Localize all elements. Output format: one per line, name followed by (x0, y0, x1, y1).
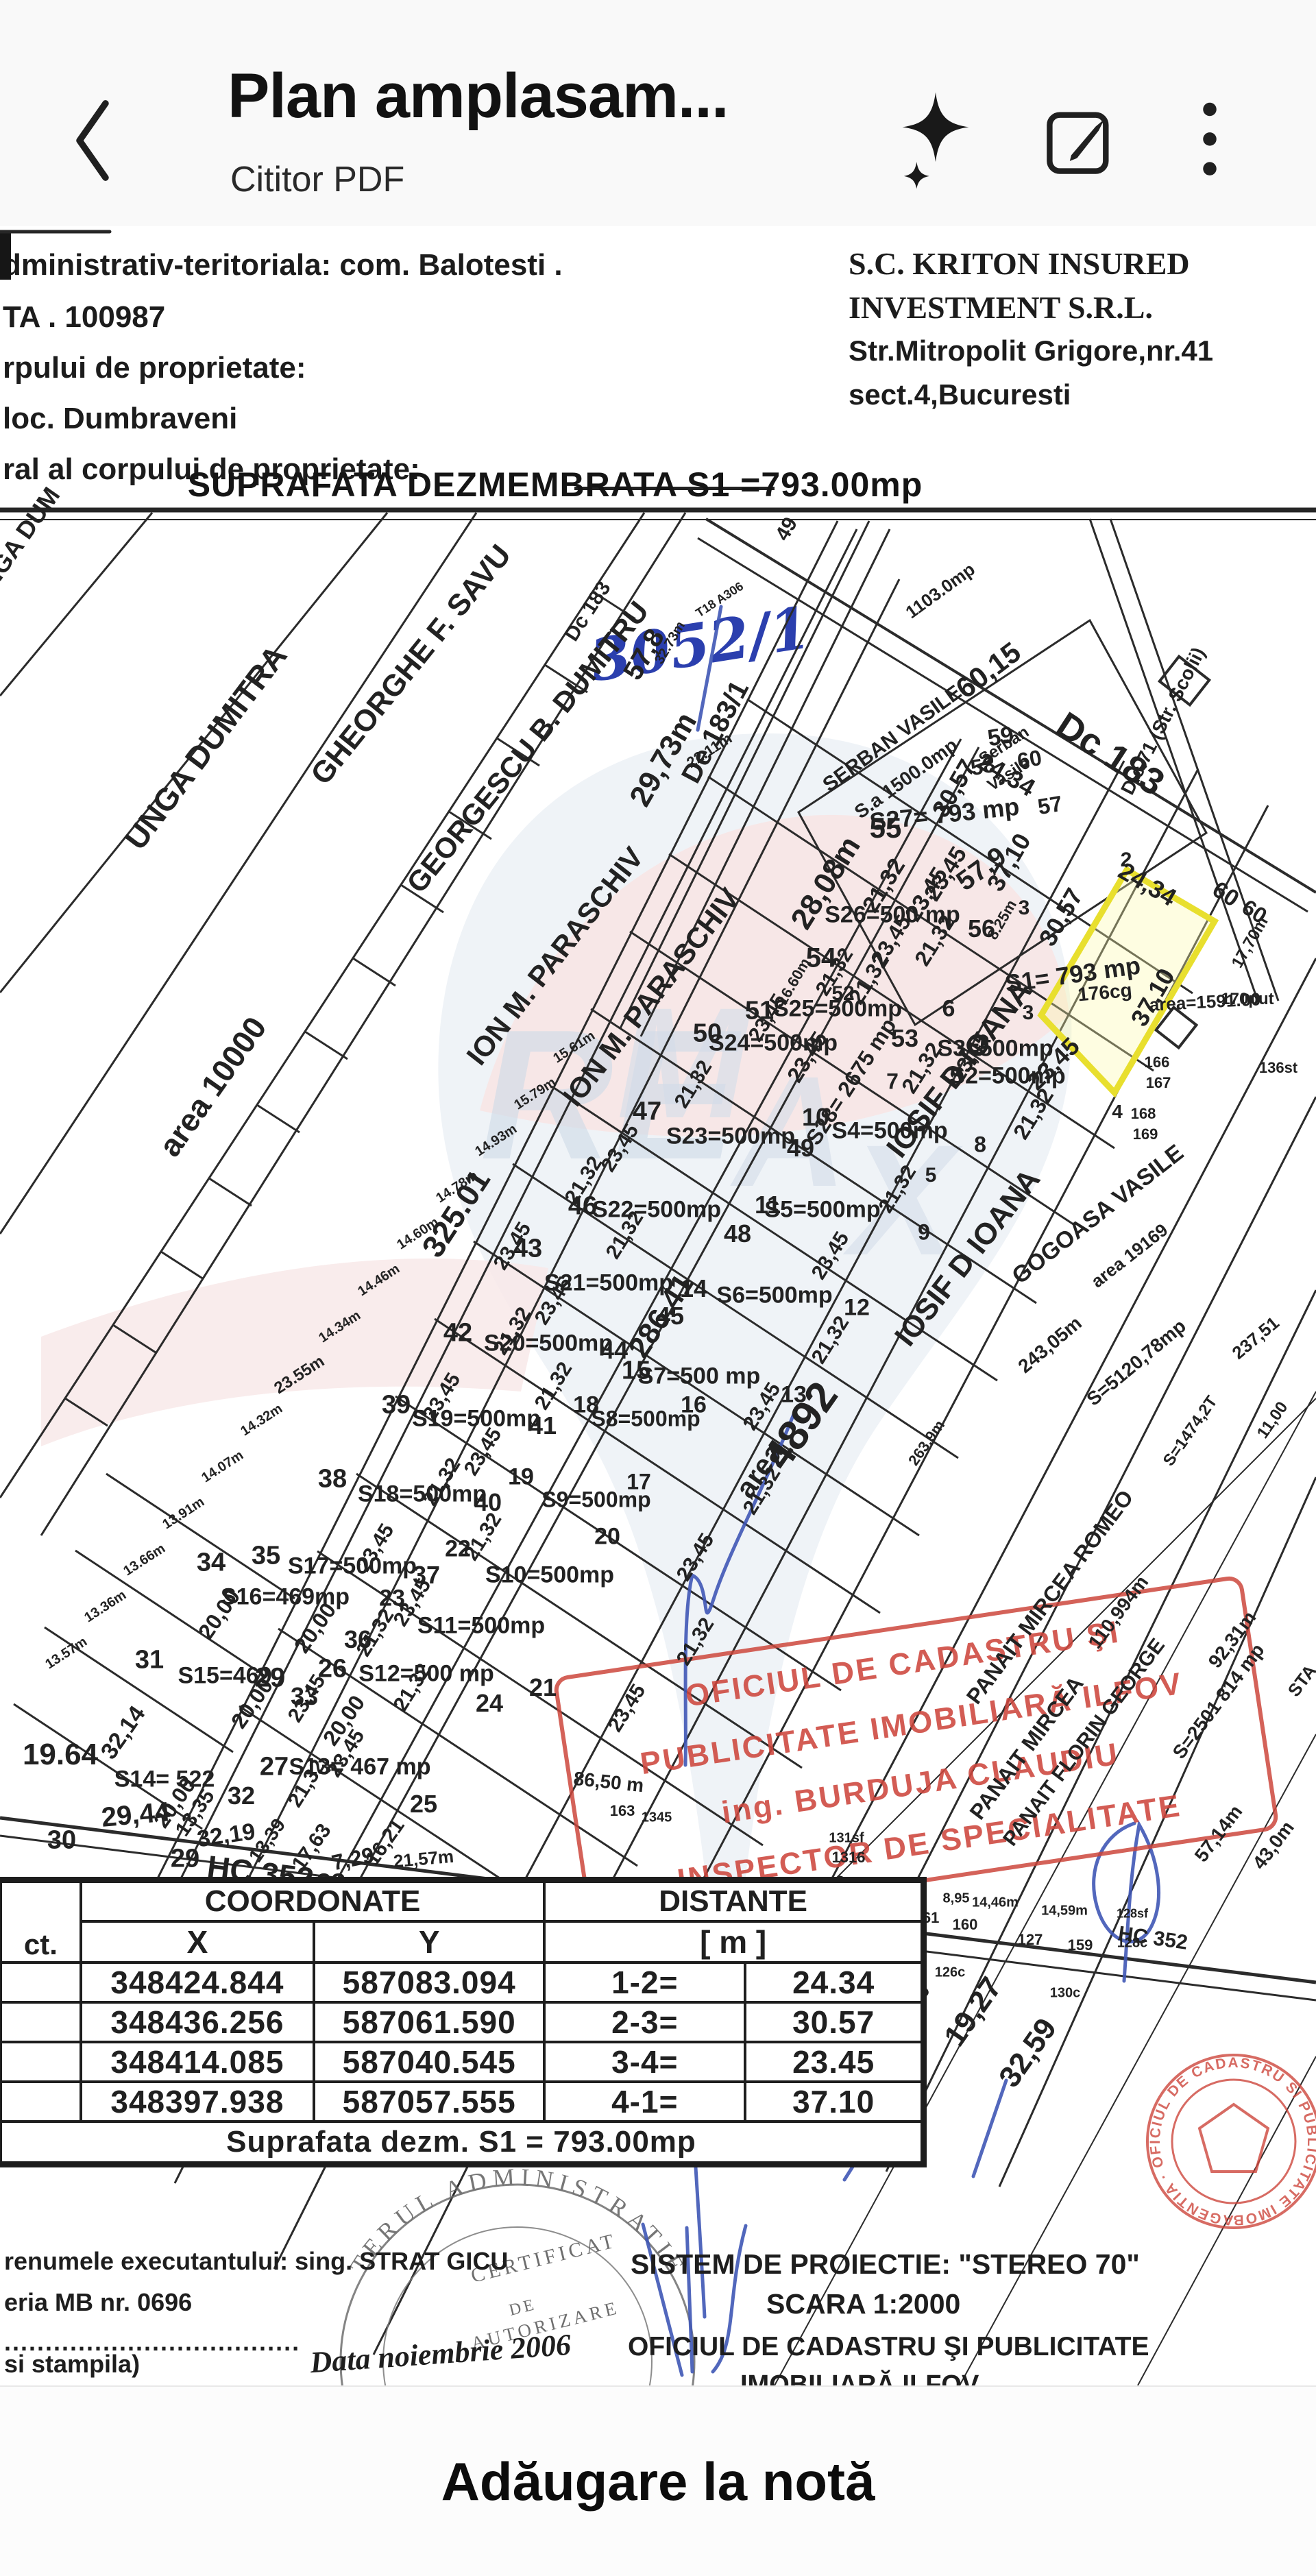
map-label: 163 (610, 1802, 635, 1820)
map-label: 60 (1208, 876, 1244, 912)
map-label: 263.9m (905, 1417, 949, 1469)
map-label: 14.32m (238, 1401, 285, 1439)
map-label: S=1474,2T (1160, 1393, 1222, 1470)
map-label: 15.79m (511, 1075, 559, 1113)
col-header-pct: ct. (1, 1882, 81, 1963)
map-label: 32,14 (96, 1701, 151, 1764)
map-label: S=5120,78mp (1082, 1315, 1190, 1410)
map-label: 20,00 (193, 1585, 245, 1644)
map-label: 5 (925, 1164, 937, 1187)
map-label: NGA DUM (0, 482, 66, 594)
map-label: S23=500mp (666, 1123, 795, 1150)
map-label: 13.57m (42, 1634, 90, 1673)
map-label: 8 (974, 1132, 986, 1158)
map-label: 136st (1259, 1059, 1297, 1077)
add-to-note-bar[interactable]: Adăugare la notă (0, 2385, 1316, 2576)
map-label: 13.36m (82, 1588, 129, 1626)
map-label: 23.55m (271, 1352, 328, 1398)
col-header-m: [ m ] (544, 1921, 922, 1963)
map-label: S7=500 mp (638, 1363, 761, 1390)
map-label: 11,00 (1254, 1398, 1293, 1442)
map-label: 14.07m (199, 1448, 246, 1486)
map-label: area 19169 (1087, 1219, 1172, 1292)
back-chevron-icon (69, 96, 117, 185)
map-label: 32 (228, 1782, 255, 1810)
map-label: 17,70m (1228, 914, 1273, 972)
map-label: T18 A306 (693, 579, 746, 620)
map-label: 15 (622, 1357, 650, 1386)
map-label: S24=500mp (709, 1030, 838, 1057)
map-label: 25 (410, 1790, 437, 1819)
map-label: 1345 (642, 1810, 672, 1826)
map-label: 14,59m (1041, 1904, 1088, 1919)
map-label: 21,32 (807, 1312, 855, 1368)
map-label: 20 (594, 1524, 620, 1551)
projection-line: SISTEM DE PROIECTIE: "STEREO 70" (631, 2248, 1140, 2281)
top-app-bar: Plan amplasam... Cititor PDF (0, 0, 1316, 226)
map-label: 16 (681, 1392, 707, 1419)
table-row: 348397.938587057.555 4-1=37.10 (1, 2082, 922, 2122)
map-label: 21,57m (393, 1846, 455, 1873)
table-row: 348436.256587061.590 2-3=30.57 (1, 2002, 922, 2042)
office-line: OFICIUL DE CADASTRU ŞI PUBLICITATE (628, 2332, 1149, 2362)
map-label: 14,46m (972, 1895, 1019, 1911)
map-label: 13.91m (160, 1494, 207, 1533)
col-header-distante: DISTANTE (544, 1882, 922, 1921)
map-label: 41 (529, 1411, 557, 1440)
map-label: 131sf (829, 1831, 864, 1847)
map-label: 21,32 (875, 1161, 922, 1217)
stamp-note-line: si stampila) (4, 2350, 140, 2379)
map-label: S22=500mp (592, 1197, 721, 1224)
map-label: 56 (968, 914, 995, 943)
map-label: 4 (1112, 1101, 1123, 1123)
map-label: 21,32 (670, 1056, 718, 1113)
edit-button[interactable] (1028, 89, 1131, 192)
map-label: 55 (870, 812, 902, 845)
map-label: S10=500mp (485, 1562, 614, 1589)
map-label: 167 (1146, 1074, 1171, 1092)
map-label: 59 (986, 722, 1016, 753)
map-label: 1103.0mp (902, 559, 979, 623)
map-label: 35 (252, 1542, 280, 1571)
overflow-menu-button[interactable] (1158, 89, 1261, 192)
map-label: 45 (657, 1302, 684, 1330)
table-row: 348424.844587083.094 1-2=24.34 (1, 1963, 922, 2002)
map-label: 42 (443, 1319, 472, 1348)
map-label: 2 (1121, 849, 1132, 872)
map-label: 3 (1023, 1001, 1034, 1025)
map-label: 23,45 (604, 1680, 651, 1736)
map-label: 30 (47, 1826, 76, 1856)
kebab-menu-icon (1196, 96, 1223, 185)
map-label: 27 (260, 1753, 289, 1782)
map-label: 128sf (1117, 1907, 1148, 1921)
map-label: PANAIT MIRCEA ROMEO (962, 1485, 1139, 1709)
map-label: 1316 (832, 1849, 866, 1867)
col-header-coordonate: COORDONATE (81, 1882, 545, 1921)
map-label: 50 (693, 1019, 722, 1049)
add-to-note-label[interactable]: Adăugare la notă (441, 2451, 875, 2513)
map-label: 57 (1036, 791, 1064, 821)
map-label: 170put (1221, 990, 1274, 1009)
map-label: S2=500mp (949, 1063, 1065, 1090)
map-label: S3=500mp (937, 1036, 1053, 1062)
map-label: 9 (918, 1220, 930, 1246)
map-label: 17 (626, 1470, 651, 1495)
map-label: 160 (953, 1916, 978, 1934)
map-label: 14.34m (316, 1308, 363, 1346)
office-line-2: IMOBILIARĂ ILFOV (740, 2370, 979, 2385)
map-label: 38 (318, 1465, 347, 1494)
map-label: 21,32 (672, 1614, 720, 1670)
map-label: 29,44 (100, 1797, 171, 1834)
map-label: S4=500mp (831, 1118, 947, 1145)
map-label: 14 (680, 1274, 707, 1303)
app-name: Cititor PDF (230, 159, 404, 200)
back-button[interactable] (41, 89, 144, 192)
coordinates-table: ct. COORDONATE DISTANTE X Y [ m ] 348424… (0, 1877, 927, 2167)
ai-summarize-button[interactable] (884, 89, 987, 192)
map-label: 49 (771, 513, 803, 545)
col-header-x: X (81, 1921, 314, 1963)
map-label: 126c (935, 1965, 966, 1981)
map-label: 159 (1068, 1936, 1093, 1954)
map-label: S11=500mp (417, 1613, 545, 1640)
map-label: 168 (1131, 1105, 1156, 1123)
table-row: 348414.085587040.545 3-4=23.45 (1, 2042, 922, 2082)
map-label: 21,32 (1008, 1084, 1059, 1144)
map-label: S17=500mp (288, 1553, 417, 1580)
map-label: area 10000 (151, 1010, 273, 1163)
map-label: 57,14m (1191, 1801, 1247, 1866)
map-label: 31 (135, 1646, 164, 1675)
map-label: 24 (476, 1689, 503, 1718)
table-footer: Suprafata dezm. S1 = 793.00mp (1, 2122, 922, 2163)
map-label: 110,994m (1084, 1572, 1154, 1653)
map-label: 130c (1050, 1986, 1081, 2002)
map-label: S5=500mp (764, 1197, 880, 1224)
sparkle-icon (894, 89, 977, 192)
map-label: 17,63 (288, 1819, 337, 1875)
edit-pencil-icon (1044, 105, 1116, 177)
map-label: 14.93m (472, 1121, 520, 1160)
map-label: 32,59 (992, 2013, 1064, 2094)
map-label: 21,32 (531, 1358, 578, 1414)
map-label: 8,95 (943, 1891, 970, 1907)
col-header-y: Y (314, 1921, 544, 1963)
map-label: 23,45 (531, 1273, 578, 1329)
map-label: 243,05m (1014, 1312, 1086, 1378)
map-label: 128c (1117, 1936, 1148, 1952)
map-label: 23,45 (807, 1228, 855, 1284)
map-label: 127 (1018, 1931, 1043, 1949)
map-label: STA (1284, 1661, 1316, 1701)
map-label: 39 (382, 1391, 411, 1420)
map-label: 47 (633, 1097, 661, 1127)
pdf-page[interactable]: dministrativ-teritoriala: com. Balotesti… (0, 226, 1316, 2385)
map-label: 13.66m (121, 1541, 168, 1579)
map-label: 237,51 (1228, 1313, 1284, 1364)
map-label: 19.64 (23, 1738, 98, 1772)
map-label: 23,45 (672, 1529, 720, 1585)
map-label: 3 (1019, 897, 1030, 920)
map-label: 19,27 (938, 1971, 1009, 2053)
map-label: 29 (171, 1845, 199, 1874)
map-label: 48 (724, 1219, 751, 1248)
map-label: 19 (508, 1464, 534, 1491)
page-title: Plan amplasam... (228, 60, 729, 132)
map-label: 34 (197, 1548, 226, 1578)
map-label: UNGA DUMITRA (117, 638, 295, 857)
map-label: S6=500mp (716, 1283, 832, 1309)
map-label: 21 (529, 1673, 557, 1702)
map-label: 43,0m (1248, 1817, 1298, 1874)
map-label: GHEORGHE F. SAVU (304, 538, 518, 791)
map-label: 7 (886, 1069, 899, 1095)
map-label: 86,50 m (572, 1768, 645, 1797)
map-label: 30,57 (1033, 883, 1088, 951)
series-line: eria MB nr. 0696 (4, 2288, 192, 2317)
scale-line: SCARA 1:2000 (766, 2288, 960, 2320)
map-label: 169 (1133, 1126, 1158, 1143)
map-label: 12 (844, 1295, 870, 1322)
map-label: 6 (942, 996, 955, 1023)
executant-line: renumele executantului: sing. STRAT GICU (4, 2247, 508, 2276)
map-label: 14.46m (355, 1261, 402, 1300)
map-label: 166 (1145, 1054, 1170, 1071)
